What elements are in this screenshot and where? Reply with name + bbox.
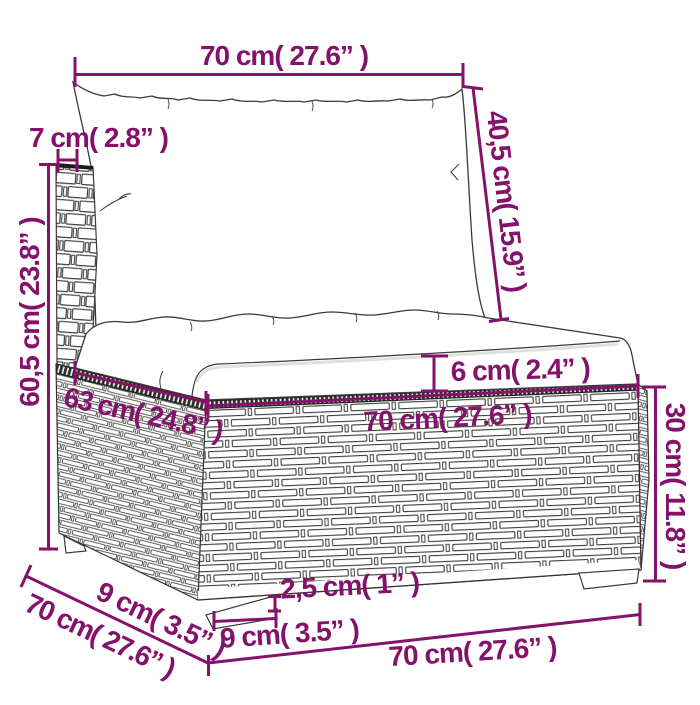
svg-text:70 cm( 27.6” ): 70 cm( 27.6” ) <box>200 40 368 71</box>
svg-text:6 cm( 2.4” ): 6 cm( 2.4” ) <box>450 352 590 387</box>
svg-text:60,5 cm( 23.8” ): 60,5 cm( 23.8” ) <box>14 217 45 406</box>
svg-text:7 cm( 2.8” ): 7 cm( 2.8” ) <box>29 122 168 153</box>
svg-text:30 cm( 11.8” ): 30 cm( 11.8” ) <box>660 403 691 570</box>
